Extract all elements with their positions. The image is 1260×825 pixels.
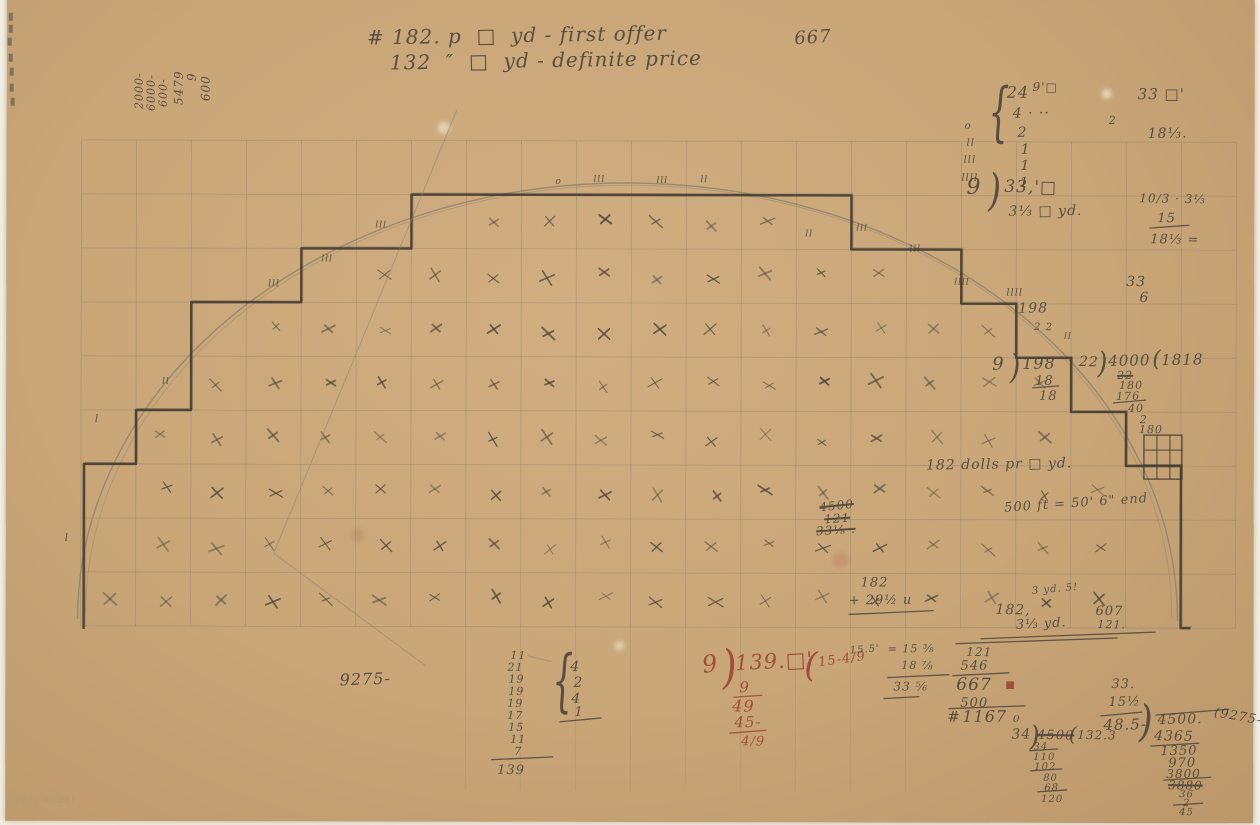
handwritten-note: lll <box>268 280 280 289</box>
handwritten-note: 4000 <box>1108 353 1150 369</box>
handwritten-note: 2 <box>1017 126 1027 140</box>
handwritten-note: 18⅓ = <box>1150 233 1199 247</box>
handwritten-note: lll <box>593 176 605 185</box>
handwritten-note: 9 <box>186 72 198 81</box>
handwritten-note: ■ <box>1005 681 1016 691</box>
handwritten-note: 1167 ₀ <box>962 709 1020 725</box>
handwritten-note: 33 <box>1126 275 1146 289</box>
handwritten-note: 33,'□ <box>1004 179 1057 197</box>
handwritten-note: 2 <box>1109 115 1117 126</box>
handwritten-note: 33⅛ . <box>816 523 856 538</box>
note-667: 667 <box>794 28 832 48</box>
handwritten-note: ) <box>988 169 1003 213</box>
handwritten-note: 18 <box>1035 375 1054 388</box>
handwritten-note: ll <box>700 176 708 185</box>
handwritten-note: 45- <box>734 715 761 730</box>
handwritten-note: 667 <box>956 677 992 694</box>
handwritten-note: 2 <box>573 676 583 690</box>
paper-sheet: # 182. p □ yd - first offer667132 ″ □ yd… <box>5 0 1255 823</box>
handwritten-note: 546 <box>960 660 988 673</box>
handwritten-note: 198 <box>1018 301 1048 315</box>
handwritten-note: 139 <box>497 764 525 777</box>
handwritten-note: 18 ⅞ <box>901 660 933 672</box>
handwritten-note: 198 <box>1022 356 1056 372</box>
handwritten-note: lll <box>964 156 977 166</box>
handwritten-note: ) <box>1009 351 1022 385</box>
handwritten-note: 11 <box>510 734 526 745</box>
handwritten-note: 45 <box>1179 808 1194 818</box>
handwritten-note: 15 <box>508 722 524 733</box>
handwritten-note: 2 2 <box>1034 323 1053 333</box>
handwritten-note: ) <box>1097 349 1108 379</box>
note-first-offer: # 182. p □ yd - first offer <box>367 23 667 48</box>
note-definite-price: 132 ″ □ yd - definite price <box>390 48 702 73</box>
handwritten-note: 121. <box>1097 619 1126 630</box>
handwritten-note: 3⅓ yd. <box>1016 616 1067 632</box>
handwritten-note: 68 <box>1044 784 1059 794</box>
handwritten-note: (9275- <box>1213 706 1260 727</box>
handwritten-note: ll <box>1064 333 1072 342</box>
note-9275: 9275- <box>339 671 391 689</box>
handwritten-note: = 15 ⅜ <box>888 643 935 655</box>
note-139-division: 9 <box>700 651 719 677</box>
handwritten-note: lll <box>375 221 387 230</box>
handwritten-note: 6 <box>1139 291 1149 305</box>
handwritten-note: 132.3 <box>1077 729 1116 741</box>
handwritten-note: 120 <box>1041 795 1063 805</box>
handwritten-note: 18 <box>1039 390 1058 403</box>
handwritten-note: 11 <box>510 650 526 661</box>
handwritten-note: # <box>947 710 961 725</box>
handwritten-note: 1818 <box>1161 352 1203 368</box>
handwritten-note: 33. <box>1111 678 1135 691</box>
note-dollars-per-yd: 182 dolls pr □ yd. <box>926 456 1072 472</box>
handwritten-note: 17 <box>507 710 523 721</box>
handwritten-note: 9 <box>966 177 981 199</box>
handwritten-note: l <box>65 534 69 544</box>
handwritten-note: 2000- <box>134 72 145 109</box>
handwritten-note: 24 <box>1007 85 1029 101</box>
handwritten-note: 182 <box>861 576 889 589</box>
handwritten-note: 600 <box>200 75 212 101</box>
handwritten-note: 607 <box>1096 605 1124 618</box>
handwriting-layer: # 182. p □ yd - first offer667132 ″ □ yd… <box>5 0 1260 824</box>
handwritten-note: 600- <box>158 78 169 107</box>
handwritten-note: 1 <box>1020 159 1030 173</box>
handwritten-note: 19 <box>508 673 524 684</box>
handwritten-note: ll <box>967 139 975 149</box>
handwritten-note: 33 □' <box>1138 87 1185 102</box>
handwritten-note: 34 <box>1011 727 1031 741</box>
handwritten-note: lll <box>856 224 868 233</box>
handwritten-note: l <box>95 415 99 425</box>
handwritten-note: 4 · ·· <box>1013 106 1050 120</box>
handwritten-note: 3 yd. 5! <box>1032 583 1079 597</box>
handwritten-note: 176 <box>1116 391 1140 402</box>
handwritten-note: 139.□' <box>734 649 813 674</box>
handwritten-note: 6000- <box>146 74 157 111</box>
handwritten-note: + 29½ u <box>849 594 913 608</box>
handwritten-note: 9'□ <box>1032 81 1057 93</box>
handwritten-note: 9 <box>739 680 750 695</box>
note-500ft: 500 ft = 50' 6" end <box>1004 492 1149 515</box>
handwritten-note: 7 <box>514 746 522 757</box>
handwritten-note: 15 <box>1157 212 1176 225</box>
handwritten-note: llll <box>1006 289 1023 299</box>
handwritten-note: 15.5' <box>850 644 881 656</box>
handwritten-note: lll <box>656 177 668 186</box>
handwritten-note: 10/3 · 3⅓ <box>1139 192 1206 205</box>
handwritten-note: 22 <box>1079 355 1099 370</box>
handwritten-note: 19 <box>507 698 523 709</box>
handwritten-note: 102 <box>1034 763 1056 773</box>
scanned-document: { "page": {"background": "#f2eee1", "pap… <box>0 0 1260 825</box>
handwritten-note: 15½ <box>1108 695 1140 709</box>
handwritten-note: 21 <box>507 662 523 673</box>
handwritten-note: 9 <box>992 356 1005 374</box>
handwritten-note: 182, <box>995 603 1031 618</box>
handwritten-note: 4500. <box>1157 712 1202 727</box>
handwritten-note: 4/9 <box>741 735 765 748</box>
handwritten-note: 121 <box>966 646 992 659</box>
handwritten-note: 4365 <box>1154 729 1194 744</box>
handwritten-note: ll <box>162 378 170 387</box>
handwritten-note: ) <box>1138 701 1154 744</box>
handwritten-note: ( <box>804 648 819 682</box>
handwritten-note: 19 <box>508 686 524 697</box>
handwritten-note: lll <box>909 245 921 254</box>
handwritten-note: 4 <box>570 660 580 674</box>
handwritten-note: llll <box>954 279 970 288</box>
handwritten-note: 1 <box>574 706 583 719</box>
accession-number: 1945.50.261 <box>15 796 77 805</box>
handwritten-note: 33 ⅚ <box>893 681 928 693</box>
handwritten-note: 3⅓ □ yd. <box>1008 204 1082 219</box>
handwritten-note: ll <box>805 230 813 239</box>
handwritten-note: 18⅓. <box>1148 126 1188 141</box>
handwritten-note: o <box>965 122 972 132</box>
handwritten-note: 5479 <box>173 70 185 105</box>
handwritten-note: o <box>555 178 562 187</box>
handwritten-note: 180 <box>1139 424 1163 435</box>
handwritten-note: lll <box>321 255 333 264</box>
handwritten-note: 1 <box>1021 143 1031 157</box>
